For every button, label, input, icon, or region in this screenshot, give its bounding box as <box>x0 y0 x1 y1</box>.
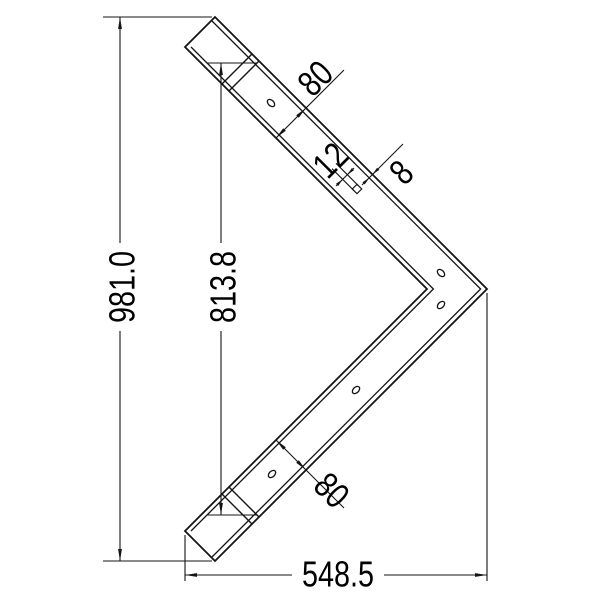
hole-lower-arm-end <box>267 469 277 479</box>
dim-edge-thickness-label: 8 <box>381 152 421 192</box>
dim-arm-width-lower-label: 80 <box>306 464 358 516</box>
hole-corner-upper <box>436 268 446 278</box>
arrowhead-down <box>219 503 223 515</box>
dim-square-slot: 12 <box>304 134 358 190</box>
hole-upper-arm <box>266 98 276 108</box>
square-slot <box>352 184 361 193</box>
top-end-cap-line-1 <box>222 54 252 84</box>
dim-overall-height-label: 981.0 <box>102 251 143 323</box>
dim-overall-height: 981.0 <box>102 17 212 561</box>
bottom-end-cap-line-1 <box>222 494 252 524</box>
dim-inner-length-label: 813.8 <box>203 251 244 323</box>
arrowhead-up <box>219 63 223 75</box>
technical-drawing: 981.0 813.8 548.5 80 80 <box>0 0 600 600</box>
arrowhead-right <box>475 573 487 577</box>
dim-inner-length: 813.8 <box>203 63 257 515</box>
hole-corner-lower <box>436 300 446 310</box>
dim-arm-width-lower: 80 <box>276 440 358 516</box>
bottom-end-cap-line-2 <box>229 487 259 517</box>
hole-lower-arm-mid <box>351 385 361 395</box>
dim-overall-width: 548.5 <box>185 293 487 594</box>
arrowhead-left <box>185 573 197 577</box>
drawing-canvas: 981.0 813.8 548.5 80 80 <box>0 0 600 600</box>
dim-arm-width-upper-label: 80 <box>289 52 341 104</box>
top-end-cap-line-2 <box>229 61 259 91</box>
arrowhead-up <box>118 17 122 29</box>
dim-overall-width-label: 548.5 <box>302 554 374 595</box>
dim-edge-thickness: 8 <box>362 144 421 192</box>
arrowhead-down <box>118 549 122 561</box>
dim-square-slot-label: 12 <box>304 134 356 186</box>
